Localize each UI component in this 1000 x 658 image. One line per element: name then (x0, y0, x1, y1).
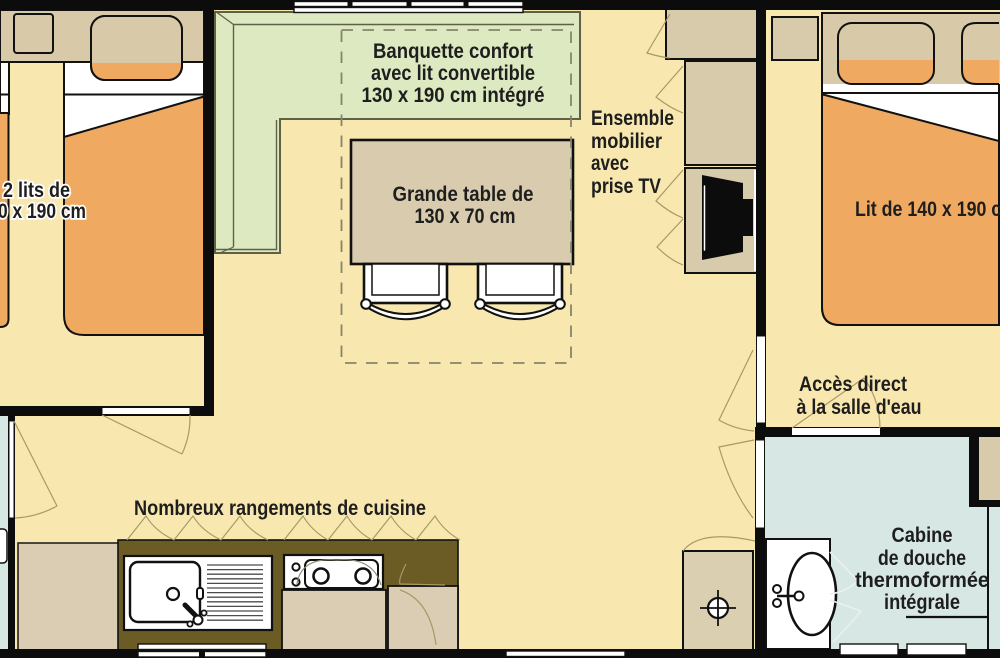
svg-text:de douche: de douche (878, 547, 966, 570)
svg-text:intégrale: intégrale (884, 591, 960, 614)
svg-text:à la salle d'eau: à la salle d'eau (797, 396, 922, 419)
svg-text:Grande table de: Grande table de (393, 183, 534, 206)
svg-text:0 x 190 cm: 0 x 190 cm (0, 200, 86, 223)
svg-text:Nombreux rangements de cuisine: Nombreux rangements de cuisine (134, 497, 426, 520)
svg-text:thermoformée: thermoformée (855, 569, 989, 592)
svg-text:Accès direct: Accès direct (799, 373, 907, 396)
svg-text:130 x 190 cm intégré: 130 x 190 cm intégré (362, 84, 545, 107)
svg-text:130 x 70 cm: 130 x 70 cm (415, 205, 516, 228)
svg-text:Lit de 140 x 190 cm: Lit de 140 x 190 cm (855, 198, 1000, 221)
svg-text:Ensemble: Ensemble (591, 107, 674, 130)
svg-text:2 lits de: 2 lits de (3, 179, 70, 202)
svg-text:avec lit convertible: avec lit convertible (371, 62, 535, 85)
svg-text:prise TV: prise TV (591, 175, 661, 198)
svg-text:Cabine: Cabine (892, 524, 953, 547)
svg-text:mobilier: mobilier (591, 130, 662, 153)
svg-text:avec: avec (591, 152, 629, 175)
svg-text:Banquette confort: Banquette confort (373, 40, 533, 63)
